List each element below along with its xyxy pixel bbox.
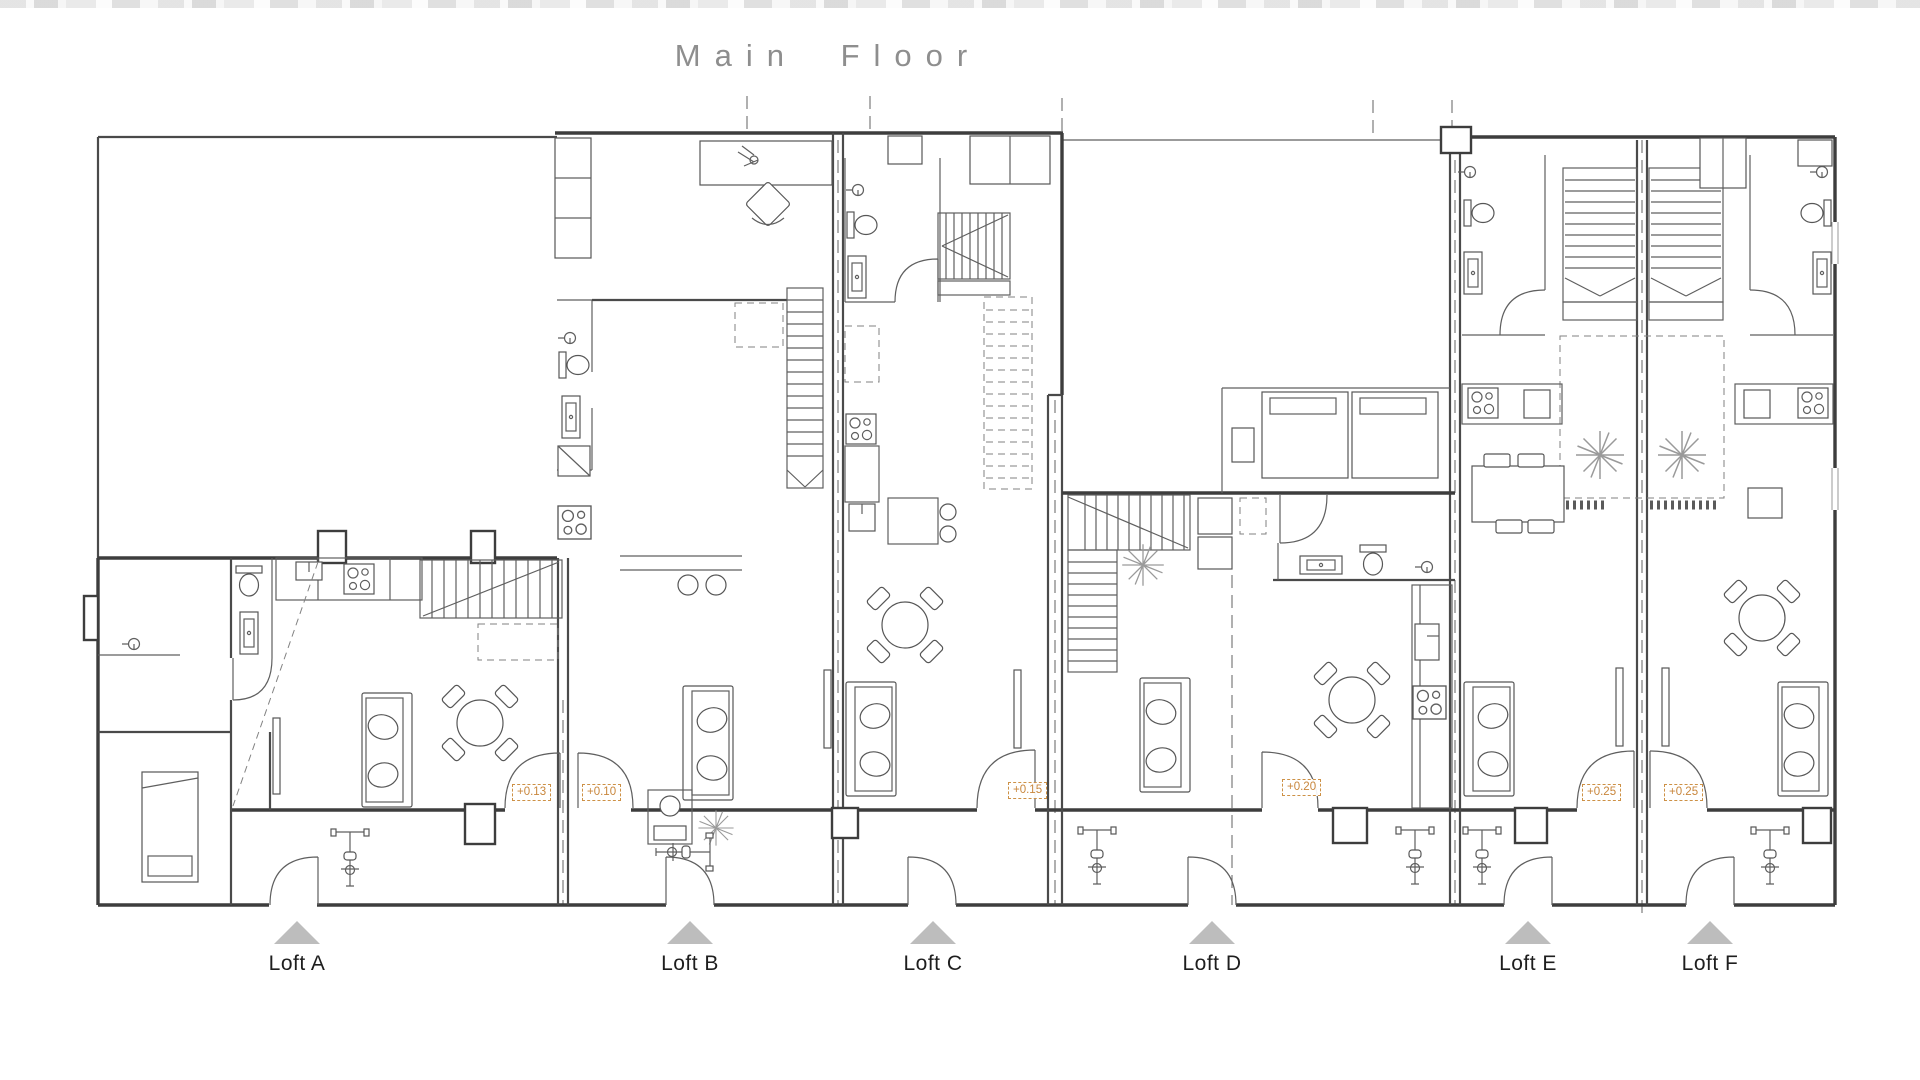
sink-vanity-icon	[1300, 556, 1342, 574]
bike-icon	[331, 829, 369, 886]
door-arc	[977, 750, 1035, 808]
bike-icon	[1078, 827, 1116, 884]
sofa-icon	[1140, 678, 1190, 792]
elevation-marker-loft-d: +0.20	[1282, 779, 1321, 796]
plant-icon	[698, 810, 733, 845]
entrance-marker-loft-a: Loft A	[227, 921, 367, 976]
loft-e-f-rooms	[1458, 138, 1833, 808]
loft-label: Loft B	[620, 952, 760, 976]
entrance-triangle-icon	[1687, 921, 1733, 944]
sink-vanity-icon	[1464, 252, 1482, 294]
toilet-icon	[1801, 200, 1831, 226]
tv-icon	[273, 718, 280, 794]
desk-icon	[700, 141, 832, 185]
floor-plan-drawing	[0, 0, 1920, 1080]
door-arc	[1280, 495, 1327, 543]
dining-table-icon	[1723, 579, 1801, 657]
door-arc	[895, 259, 938, 302]
tv-icon	[1014, 670, 1021, 748]
towel-hook-icon	[1415, 562, 1433, 573]
door-arc	[1500, 290, 1545, 335]
shower-icon	[846, 185, 864, 196]
entrance-triangle-icon	[274, 921, 320, 944]
sofa-icon	[683, 686, 733, 800]
dining-table-icon	[441, 684, 519, 762]
toilet-icon	[1464, 200, 1494, 226]
stove-icon	[846, 414, 876, 444]
floor-plan-canvas: Main Floor	[0, 0, 1920, 1080]
stove-icon	[558, 506, 591, 539]
sink-vanity-icon	[1813, 252, 1831, 294]
stove-icon	[1413, 686, 1446, 719]
entrance-marker-loft-e: Loft E	[1458, 921, 1598, 976]
elevation-marker-loft-c: +0.15	[1008, 782, 1047, 799]
loft-label: Loft E	[1458, 952, 1598, 976]
sofa-icon	[1464, 682, 1514, 796]
sink-vanity-icon	[240, 612, 258, 654]
entrance-triangle-icon	[1189, 921, 1235, 944]
bike-icon	[1396, 827, 1434, 884]
door-arc	[1750, 290, 1795, 335]
loft-label: Loft D	[1142, 952, 1282, 976]
bed-icon	[1352, 392, 1438, 478]
sink-vanity-icon	[562, 396, 580, 438]
elevation-marker-loft-a: +0.13	[512, 784, 551, 801]
sofa-icon	[1778, 682, 1828, 796]
entrance-triangle-icon	[910, 921, 956, 944]
plant-icon	[1658, 431, 1706, 479]
loft-c-rooms	[845, 136, 1050, 808]
tv-icon	[1662, 668, 1669, 746]
tv-icon	[1616, 668, 1623, 746]
entrance-marker-loft-d: Loft D	[1142, 921, 1282, 976]
shower-icon	[558, 333, 576, 344]
dining-table-icon	[1313, 661, 1391, 739]
toilet-icon	[1360, 545, 1386, 575]
plant-icon	[1576, 431, 1624, 479]
tv-icon	[824, 670, 831, 748]
toilet-icon	[236, 566, 262, 596]
loft-label: Loft F	[1640, 952, 1780, 976]
toilet-icon	[847, 212, 877, 238]
bed-icon	[142, 772, 198, 882]
sofa-icon	[362, 693, 412, 807]
elevation-marker-loft-e: +0.25	[1582, 784, 1621, 801]
loft-label: Loft C	[863, 952, 1003, 976]
entrance-marker-loft-c: Loft C	[863, 921, 1003, 976]
entrance-corridor	[270, 827, 1789, 905]
dining-table-icon	[1472, 466, 1564, 522]
toilet-icon	[559, 352, 589, 378]
entrance-triangle-icon	[1505, 921, 1551, 944]
shower-icon	[1810, 167, 1828, 178]
entrance-marker-loft-f: Loft F	[1640, 921, 1780, 976]
stove-icon	[344, 564, 374, 594]
office-chair-icon	[745, 181, 790, 226]
stove-icon	[1798, 388, 1828, 418]
dining-table-icon	[866, 586, 944, 664]
entrance-marker-loft-b: Loft B	[620, 921, 760, 976]
bike-icon	[1463, 827, 1501, 884]
bed-icon	[1262, 392, 1348, 478]
stove-icon	[1468, 388, 1498, 418]
loft-d-rooms	[1062, 388, 1455, 808]
entrance-triangle-icon	[667, 921, 713, 944]
shower-icon	[122, 639, 140, 650]
loft-label: Loft A	[227, 952, 367, 976]
elevation-marker-loft-b: +0.10	[582, 784, 621, 801]
loft-a-rooms	[98, 558, 562, 905]
bike-icon	[1751, 827, 1789, 884]
loft-b-rooms	[555, 138, 832, 846]
elevation-marker-loft-f: +0.25	[1664, 784, 1703, 801]
sink-vanity-icon	[848, 256, 866, 298]
sofa-icon	[846, 682, 896, 796]
